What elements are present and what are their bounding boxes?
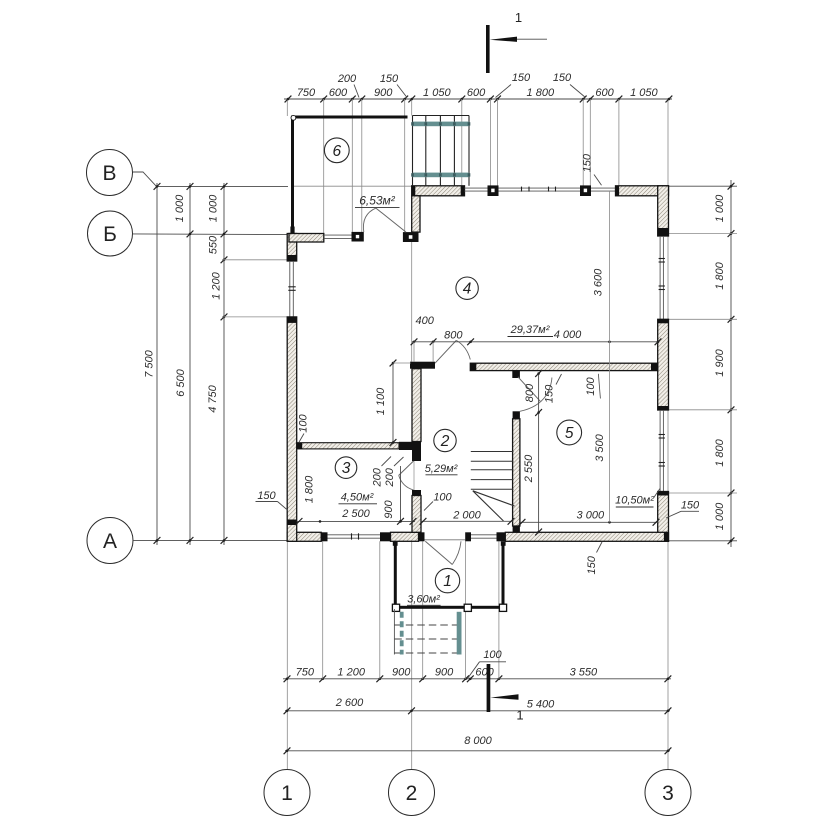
svg-text:200: 200 — [384, 467, 396, 487]
svg-text:7 500: 7 500 — [144, 349, 156, 377]
svg-text:4 750: 4 750 — [207, 384, 219, 412]
svg-text:150: 150 — [543, 384, 555, 403]
svg-text:В: В — [102, 162, 116, 185]
svg-text:4 000: 4 000 — [554, 329, 582, 341]
svg-text:1 200: 1 200 — [211, 271, 223, 299]
svg-text:3 600: 3 600 — [593, 268, 605, 296]
svg-text:2 500: 2 500 — [341, 508, 370, 520]
svg-text:100: 100 — [585, 377, 597, 396]
svg-text:150: 150 — [380, 73, 399, 85]
svg-text:600: 600 — [475, 667, 494, 679]
svg-text:1 200: 1 200 — [337, 667, 365, 679]
svg-text:1: 1 — [281, 782, 293, 805]
svg-text:29,37м²: 29,37м² — [510, 324, 550, 336]
svg-text:100: 100 — [483, 649, 502, 661]
svg-text:5,29м²: 5,29м² — [425, 463, 458, 475]
svg-text:6,53м²: 6,53м² — [359, 193, 396, 207]
svg-text:150: 150 — [582, 153, 594, 172]
svg-text:8 000: 8 000 — [464, 735, 492, 747]
svg-text:1 800: 1 800 — [304, 475, 316, 503]
svg-text:2: 2 — [440, 433, 450, 450]
svg-text:10,50м²: 10,50м² — [615, 495, 654, 507]
svg-text:1 000: 1 000 — [714, 502, 726, 530]
svg-text:1 000: 1 000 — [174, 194, 186, 222]
svg-text:900: 900 — [435, 667, 454, 679]
svg-text:200: 200 — [371, 467, 383, 487]
svg-text:600: 600 — [595, 87, 614, 99]
svg-text:2 600: 2 600 — [335, 697, 364, 709]
svg-text:2 550: 2 550 — [523, 454, 535, 483]
svg-text:900: 900 — [383, 499, 395, 518]
svg-text:600: 600 — [329, 87, 348, 99]
svg-text:150: 150 — [586, 555, 598, 574]
svg-text:6 500: 6 500 — [175, 368, 187, 396]
svg-text:1 050: 1 050 — [630, 87, 658, 99]
svg-text:1: 1 — [443, 573, 452, 590]
svg-text:1 800: 1 800 — [527, 87, 555, 99]
svg-text:3 000: 3 000 — [577, 510, 605, 522]
svg-text:100: 100 — [433, 492, 452, 504]
svg-text:600: 600 — [467, 87, 486, 99]
svg-text:Б: Б — [103, 223, 117, 246]
svg-text:150: 150 — [512, 72, 531, 84]
svg-text:1 000: 1 000 — [714, 194, 726, 222]
svg-text:150: 150 — [681, 500, 700, 512]
svg-text:3: 3 — [342, 460, 351, 477]
svg-text:100: 100 — [298, 414, 310, 433]
svg-text:1: 1 — [515, 10, 522, 25]
svg-text:150: 150 — [553, 72, 572, 84]
svg-text:800: 800 — [444, 329, 463, 341]
svg-text:3: 3 — [662, 782, 674, 805]
svg-text:4: 4 — [463, 281, 472, 298]
svg-text:5 400: 5 400 — [527, 699, 555, 711]
svg-text:1 800: 1 800 — [714, 438, 726, 466]
svg-text:2: 2 — [406, 782, 418, 805]
svg-text:5: 5 — [565, 425, 574, 442]
svg-text:750: 750 — [296, 667, 315, 679]
svg-text:3 500: 3 500 — [594, 433, 606, 461]
svg-text:1 000: 1 000 — [208, 194, 220, 222]
svg-text:2 000: 2 000 — [452, 510, 481, 522]
svg-text:6: 6 — [332, 143, 341, 160]
svg-text:750: 750 — [297, 87, 316, 99]
svg-text:900: 900 — [374, 87, 393, 99]
svg-text:800: 800 — [524, 383, 536, 402]
svg-text:1 050: 1 050 — [423, 87, 451, 99]
svg-text:А: А — [103, 530, 117, 553]
svg-text:1 900: 1 900 — [714, 348, 726, 376]
svg-text:550: 550 — [208, 235, 220, 254]
svg-text:1 100: 1 100 — [375, 387, 387, 415]
svg-text:3,60м²: 3,60м² — [407, 593, 440, 605]
svg-text:1 800: 1 800 — [714, 261, 726, 289]
svg-text:3 550: 3 550 — [570, 667, 598, 679]
svg-text:1: 1 — [516, 708, 523, 723]
svg-text:150: 150 — [257, 490, 276, 502]
svg-text:4,50м²: 4,50м² — [341, 491, 374, 503]
svg-text:400: 400 — [416, 315, 435, 327]
svg-text:900: 900 — [392, 667, 411, 679]
svg-text:200: 200 — [337, 73, 357, 85]
